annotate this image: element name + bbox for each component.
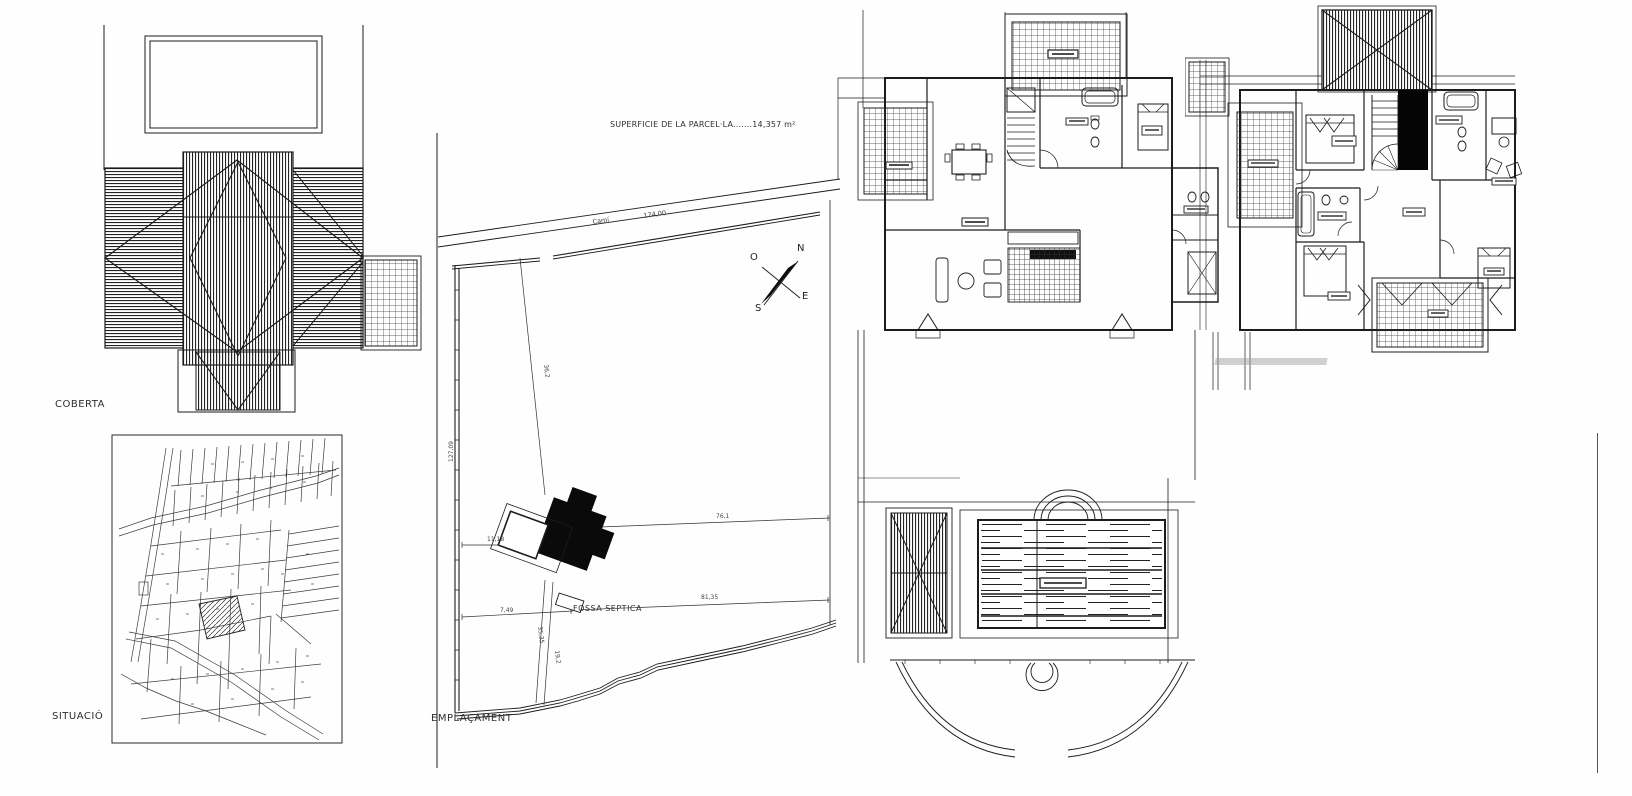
compass-south-label: S	[755, 303, 762, 314]
ground-floor-plan-drawing	[830, 5, 1226, 760]
situation-map-label: SITUACIÓ	[52, 711, 103, 722]
drawing-sheet: COBERTA	[0, 0, 1632, 796]
dim-house-to-road: 36,2	[542, 364, 551, 378]
site-plan-drawing	[428, 128, 843, 773]
dim-house-to-west: 11,18	[487, 536, 504, 543]
compass-west-label: O	[750, 252, 758, 263]
dim-west-boundary: 127,09	[448, 441, 455, 462]
septic-tank-label: FOSSA SEPTICA	[573, 604, 642, 613]
dim-septic-to-west: 7,49	[500, 607, 513, 614]
roof-plan-drawing	[50, 15, 430, 420]
dim-path-lower: 19,2	[553, 650, 562, 664]
dim-house-to-east: 76,1	[716, 513, 729, 520]
site-plan-label: EMPLAÇAMENT	[431, 713, 512, 724]
roof-plan-label: COBERTA	[55, 399, 105, 410]
sheet-frame-line	[1597, 433, 1598, 773]
upper-floor-plan-drawing	[1185, 5, 1535, 395]
compass-east-label: E	[802, 291, 809, 302]
dim-septic-to-east: 81,35	[701, 594, 718, 601]
situation-map-drawing	[111, 434, 343, 744]
surface-area-note: SUPERFICIE DE LA PARCEL·LA.......14,357 …	[610, 120, 796, 129]
scan-smudge	[1214, 358, 1327, 365]
compass-north-label: N	[797, 243, 805, 254]
